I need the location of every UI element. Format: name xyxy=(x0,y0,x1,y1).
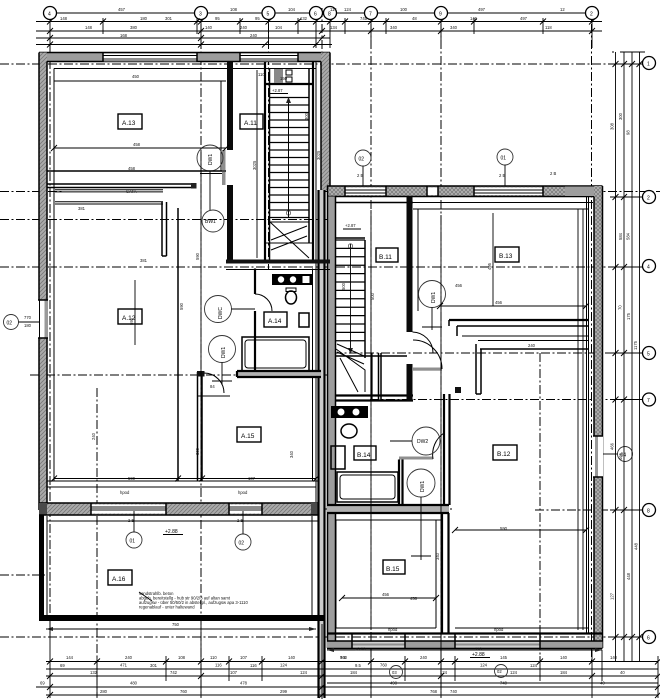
svg-text:240: 240 xyxy=(125,655,133,660)
svg-text:4: 4 xyxy=(48,12,51,18)
svg-text:466: 466 xyxy=(618,452,623,460)
svg-text:A.13: A.13 xyxy=(122,120,136,127)
svg-text:107: 107 xyxy=(230,670,238,675)
svg-text:124: 124 xyxy=(530,663,538,668)
svg-text:A.15: A.15 xyxy=(241,433,255,440)
svg-text:180: 180 xyxy=(140,16,148,21)
svg-text:108: 108 xyxy=(230,7,238,12)
svg-text:DWC: DWC xyxy=(218,307,224,319)
svg-text:1175: 1175 xyxy=(633,340,638,350)
svg-text:144: 144 xyxy=(66,655,74,660)
svg-text:114: 114 xyxy=(330,7,337,12)
svg-text:140: 140 xyxy=(205,25,213,30)
svg-text:584: 584 xyxy=(626,232,631,240)
svg-text:456: 456 xyxy=(455,283,463,288)
svg-text:124: 124 xyxy=(510,670,518,675)
svg-text:regenablauf - unter haltewand: regenablauf - unter haltewand xyxy=(139,605,195,610)
svg-text:300: 300 xyxy=(195,447,200,455)
svg-text:110: 110 xyxy=(258,72,265,77)
svg-text:40: 40 xyxy=(620,670,625,675)
svg-text:BW1: BW1 xyxy=(205,219,216,225)
svg-text:DW1: DW1 xyxy=(431,292,437,303)
svg-text:742: 742 xyxy=(170,670,178,675)
svg-text:584: 584 xyxy=(618,232,623,240)
svg-text:124: 124 xyxy=(344,7,352,12)
svg-text:340: 340 xyxy=(435,552,440,560)
svg-text:02: 02 xyxy=(497,669,502,674)
svg-text:140: 140 xyxy=(560,655,568,660)
svg-text:03: 03 xyxy=(392,670,397,675)
svg-text:2 B: 2 B xyxy=(550,171,556,176)
svg-text:69: 69 xyxy=(60,663,65,668)
svg-text:2: 2 xyxy=(647,196,650,202)
svg-text:±0.00: ±0.00 xyxy=(355,647,366,652)
svg-text:118: 118 xyxy=(545,25,552,30)
svg-text:98: 98 xyxy=(626,130,631,135)
svg-text:124: 124 xyxy=(300,670,308,675)
svg-text:B.12: B.12 xyxy=(497,451,511,458)
svg-text:01: 01 xyxy=(130,539,136,545)
svg-text:B.13: B.13 xyxy=(499,253,513,260)
svg-text:132: 132 xyxy=(300,16,308,21)
svg-text:471: 471 xyxy=(120,663,128,668)
svg-text:340: 340 xyxy=(390,25,398,30)
svg-text:240: 240 xyxy=(528,343,536,348)
svg-text:B.11: B.11 xyxy=(379,254,392,261)
svg-text:12: 12 xyxy=(560,7,565,12)
svg-text:240: 240 xyxy=(240,25,248,30)
svg-text:9: 9 xyxy=(439,12,442,18)
svg-text:760: 760 xyxy=(180,689,188,694)
svg-text:127: 127 xyxy=(610,592,615,600)
svg-text:02: 02 xyxy=(239,541,245,547)
svg-text:134: 134 xyxy=(330,25,338,30)
svg-text:40: 40 xyxy=(600,681,605,686)
svg-text:2 B: 2 B xyxy=(237,518,243,523)
svg-text:hpod: hpod xyxy=(388,627,398,632)
svg-text:3025: 3025 xyxy=(252,160,257,170)
svg-text:2: 2 xyxy=(590,12,593,18)
svg-text:+2.87: +2.87 xyxy=(272,88,283,93)
svg-text:448: 448 xyxy=(634,542,639,550)
svg-text:595: 595 xyxy=(129,317,134,325)
svg-text:6: 6 xyxy=(647,636,650,642)
svg-text:110: 110 xyxy=(475,647,482,652)
svg-text:500: 500 xyxy=(341,282,346,290)
svg-text:280: 280 xyxy=(100,689,108,694)
svg-text:448: 448 xyxy=(626,572,631,580)
svg-text:497: 497 xyxy=(478,7,486,12)
svg-text:132: 132 xyxy=(90,670,98,675)
svg-text:104: 104 xyxy=(288,7,296,12)
svg-text:5: 5 xyxy=(647,352,650,358)
svg-text:84: 84 xyxy=(210,384,215,389)
svg-text:3: 3 xyxy=(199,12,202,18)
svg-text:95: 95 xyxy=(255,16,260,21)
svg-text:A.16: A.16 xyxy=(112,576,126,583)
svg-text:2 B: 2 B xyxy=(128,518,134,523)
svg-text:3025: 3025 xyxy=(316,150,321,160)
svg-text:DW1: DW1 xyxy=(208,154,214,165)
svg-text:B.14: B.14 xyxy=(357,452,371,459)
svg-text:340: 340 xyxy=(289,450,294,458)
svg-text:DW2: DW2 xyxy=(417,439,428,445)
svg-text:A.11: A.11 xyxy=(244,120,257,127)
svg-text:8: 8 xyxy=(647,509,650,515)
svg-text:760: 760 xyxy=(380,663,388,668)
svg-text:770: 770 xyxy=(24,315,32,320)
svg-text:458: 458 xyxy=(128,166,136,171)
svg-text:116: 116 xyxy=(250,663,257,668)
svg-text:308: 308 xyxy=(610,122,615,130)
svg-text:478: 478 xyxy=(240,681,248,686)
svg-text:CATA: CATA xyxy=(126,189,137,194)
svg-text:750: 750 xyxy=(172,622,180,627)
svg-text:2 B: 2 B xyxy=(499,173,505,178)
svg-text:180: 180 xyxy=(24,323,32,328)
svg-text:4: 4 xyxy=(647,265,650,271)
svg-text:1: 1 xyxy=(647,62,650,68)
svg-text:466: 466 xyxy=(610,442,615,450)
svg-text:240: 240 xyxy=(420,655,428,660)
svg-text:124: 124 xyxy=(280,663,288,668)
svg-text:5: 5 xyxy=(267,12,270,18)
svg-text:124: 124 xyxy=(480,663,488,668)
svg-text:240: 240 xyxy=(250,33,258,38)
svg-text:2 B: 2 B xyxy=(357,173,363,178)
svg-text:590: 590 xyxy=(179,302,184,310)
svg-text:450: 450 xyxy=(132,74,140,79)
svg-text:B.15: B.15 xyxy=(386,566,400,573)
svg-text:9.5: 9.5 xyxy=(355,663,361,668)
svg-text:116: 116 xyxy=(215,663,222,668)
svg-text:DW1: DW1 xyxy=(420,481,426,492)
svg-text:148: 148 xyxy=(85,25,93,30)
svg-text:A.14: A.14 xyxy=(268,318,282,325)
svg-text:480: 480 xyxy=(130,681,138,686)
svg-text:6: 6 xyxy=(314,12,317,18)
svg-text:DW1: DW1 xyxy=(221,347,227,358)
svg-text:107: 107 xyxy=(240,655,248,660)
svg-text:104: 104 xyxy=(275,25,283,30)
svg-text:740: 740 xyxy=(450,689,458,694)
svg-text:110: 110 xyxy=(210,655,217,660)
svg-text:495: 495 xyxy=(487,262,492,270)
svg-text:300: 300 xyxy=(304,112,309,120)
svg-text:145: 145 xyxy=(500,655,508,660)
svg-text:458: 458 xyxy=(133,142,141,147)
svg-text:01: 01 xyxy=(501,156,507,162)
svg-text:760: 760 xyxy=(340,655,348,660)
svg-text:02: 02 xyxy=(7,321,13,327)
svg-text:456: 456 xyxy=(382,592,390,597)
svg-text:498: 498 xyxy=(390,681,398,686)
svg-text:48: 48 xyxy=(412,16,417,21)
svg-text:69: 69 xyxy=(40,681,45,686)
svg-text:184: 184 xyxy=(350,670,358,675)
svg-text:299: 299 xyxy=(280,689,288,694)
svg-text:590: 590 xyxy=(195,252,200,260)
svg-text:95: 95 xyxy=(215,16,220,21)
svg-text:456: 456 xyxy=(495,300,503,305)
svg-text:740: 740 xyxy=(500,681,508,686)
svg-text:108: 108 xyxy=(178,655,186,660)
svg-text:300: 300 xyxy=(618,112,623,120)
svg-text:768: 768 xyxy=(430,689,438,694)
svg-text:100: 100 xyxy=(400,7,408,12)
svg-text:hpod: hpod xyxy=(238,490,248,495)
svg-text:hpod: hpod xyxy=(494,627,504,632)
svg-text:175: 175 xyxy=(626,312,631,320)
svg-text:240: 240 xyxy=(91,432,96,440)
svg-text:7: 7 xyxy=(647,398,650,404)
svg-text:340: 340 xyxy=(450,25,458,30)
svg-text:381: 381 xyxy=(78,206,86,211)
svg-text:140: 140 xyxy=(288,655,296,660)
svg-text:301: 301 xyxy=(165,16,173,21)
svg-text:150: 150 xyxy=(280,76,288,81)
svg-text:497: 497 xyxy=(520,16,528,21)
svg-text:301: 301 xyxy=(150,663,158,668)
svg-text:380: 380 xyxy=(130,25,138,30)
svg-text:457: 457 xyxy=(118,7,126,12)
svg-text:hpod: hpod xyxy=(120,490,130,495)
svg-text:70: 70 xyxy=(618,305,623,310)
svg-text:456: 456 xyxy=(410,596,418,601)
svg-text:02: 02 xyxy=(359,157,365,163)
svg-text:7: 7 xyxy=(369,12,372,18)
svg-text:381: 381 xyxy=(140,258,148,263)
svg-text:148: 148 xyxy=(60,16,68,21)
svg-text:+2.87: +2.87 xyxy=(345,223,356,228)
svg-text:140: 140 xyxy=(610,655,618,660)
svg-text:184: 184 xyxy=(560,670,568,675)
svg-text:8: 8 xyxy=(328,12,331,18)
svg-text:168: 168 xyxy=(120,33,128,38)
